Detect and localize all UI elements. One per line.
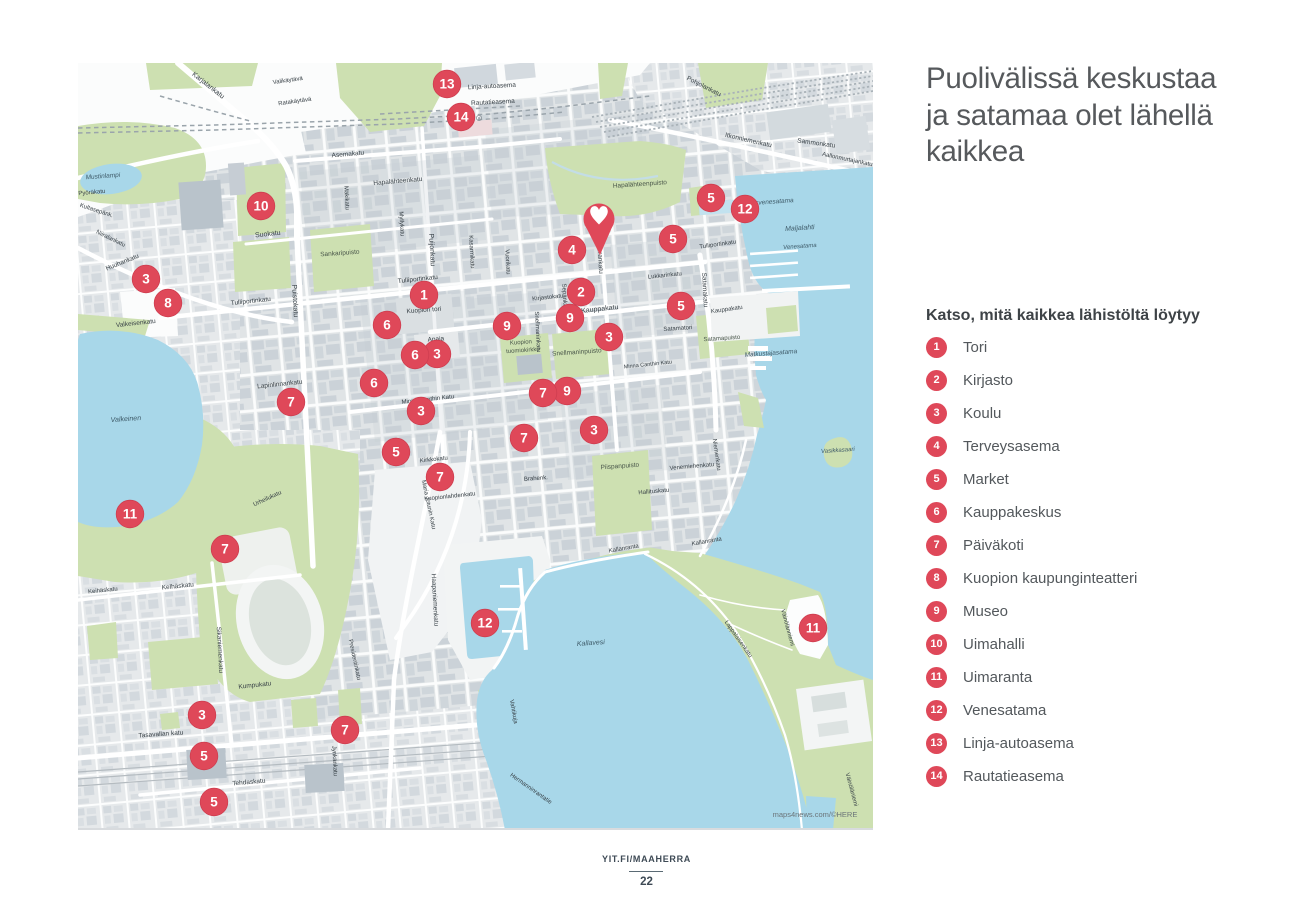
svg-text:Mäkikatu: Mäkikatu: [342, 186, 349, 210]
svg-text:3: 3: [590, 423, 598, 438]
svg-text:7: 7: [221, 542, 229, 557]
svg-text:7: 7: [436, 470, 444, 485]
svg-text:5: 5: [669, 232, 677, 247]
svg-text:11: 11: [806, 621, 821, 636]
svg-text:5: 5: [677, 299, 685, 314]
svg-text:3: 3: [417, 404, 425, 419]
svg-text:12: 12: [737, 202, 752, 217]
svg-text:9: 9: [563, 384, 571, 399]
svg-text:2: 2: [577, 285, 585, 300]
svg-text:3: 3: [605, 330, 613, 345]
svg-text:7: 7: [520, 431, 528, 446]
svg-text:14: 14: [453, 110, 469, 125]
svg-text:7: 7: [287, 395, 295, 410]
svg-text:3: 3: [142, 272, 150, 287]
svg-text:maps4news.com/©HERE: maps4news.com/©HERE: [773, 810, 858, 819]
svg-text:5: 5: [707, 191, 715, 206]
svg-text:7: 7: [341, 723, 349, 738]
svg-text:9: 9: [503, 319, 511, 334]
svg-text:5: 5: [392, 445, 400, 460]
svg-text:11: 11: [123, 507, 138, 522]
svg-text:5: 5: [200, 749, 208, 764]
svg-text:9: 9: [566, 311, 574, 326]
svg-text:8: 8: [164, 296, 172, 311]
svg-text:6: 6: [383, 318, 391, 333]
svg-text:7: 7: [539, 386, 547, 401]
svg-text:12: 12: [477, 616, 492, 631]
svg-text:1: 1: [420, 288, 428, 303]
svg-text:3: 3: [198, 708, 206, 723]
svg-text:6: 6: [411, 348, 419, 363]
svg-text:10: 10: [253, 199, 268, 214]
svg-text:5: 5: [210, 795, 218, 810]
svg-text:6: 6: [370, 376, 378, 391]
svg-text:3: 3: [433, 347, 441, 362]
svg-text:4: 4: [568, 243, 576, 258]
svg-text:13: 13: [439, 77, 455, 92]
